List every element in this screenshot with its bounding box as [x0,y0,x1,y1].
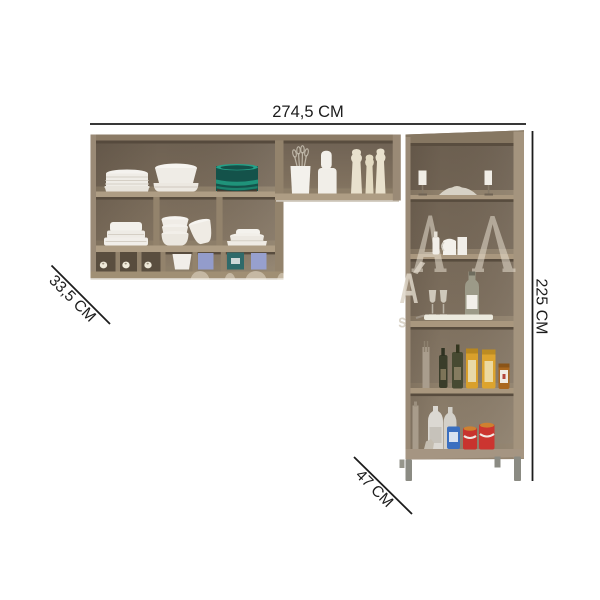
svg-text:274,5 CM: 274,5 CM [272,103,344,121]
svg-text:225 CM: 225 CM [533,278,550,334]
svg-text:s: s [398,311,406,332]
